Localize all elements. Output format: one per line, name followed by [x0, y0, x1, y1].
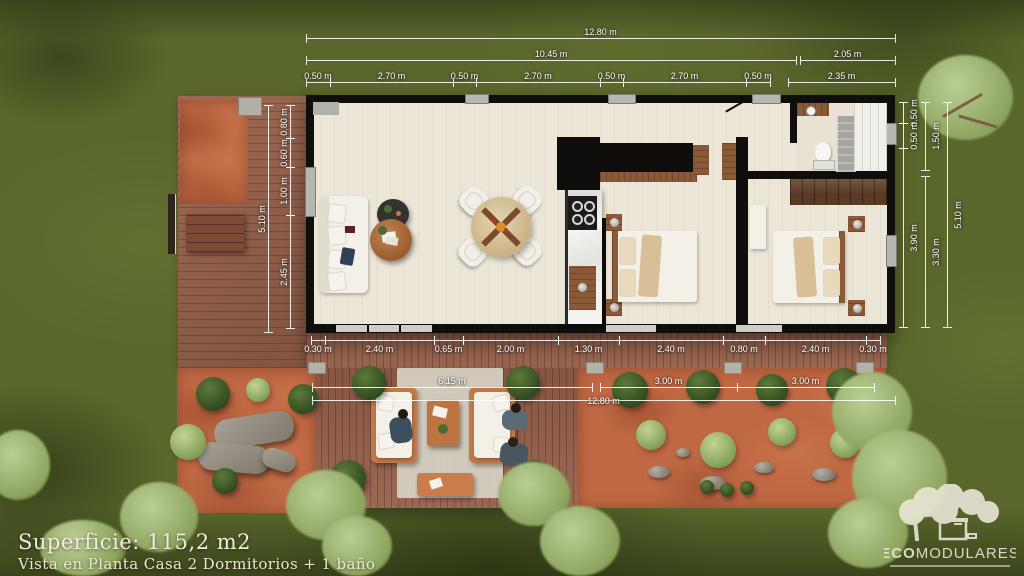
garden-shrub	[196, 377, 230, 411]
window-west	[305, 167, 316, 217]
bed-pillow	[619, 237, 636, 265]
closet-shelf	[600, 172, 697, 182]
dim-segment: 2.40 m	[765, 340, 866, 341]
sink-cabinet	[569, 266, 596, 310]
person-head	[511, 403, 521, 413]
dim-segment: 2.70 m	[476, 82, 600, 83]
dim-segment: 0.50 m	[746, 82, 770, 83]
surface-area-label: Superficie: 115,2 m2	[18, 530, 251, 554]
person	[502, 410, 528, 430]
dim-segment: 3.00 m	[600, 387, 737, 388]
person-head	[398, 409, 408, 419]
garden-tuft	[720, 483, 734, 497]
shower-tiles	[854, 103, 887, 171]
dim-segment: 0.30 m	[311, 340, 325, 341]
logo-text-eco: ECO	[884, 545, 916, 562]
floor-plan-render: 12.80 m 10.45 m 2.05 m 0.50 m 2.70 m 0.5…	[0, 0, 1024, 576]
basin	[806, 106, 816, 116]
garden-rock	[754, 462, 774, 473]
dim-segment: 0.50 m	[453, 82, 476, 83]
table-plant	[378, 226, 387, 235]
toilet-tank	[813, 160, 835, 170]
person-head	[508, 437, 518, 447]
entry-door-north	[752, 94, 781, 104]
window-east	[886, 123, 897, 145]
sink-faucet	[578, 283, 587, 292]
burner	[584, 201, 595, 212]
window-east	[886, 235, 897, 267]
garden-shrub-light	[636, 420, 666, 450]
window-south	[736, 325, 782, 332]
dim-top-10-45: 10.45 m	[306, 60, 796, 61]
ecomodulares-logo: ECOMODULARES	[884, 484, 1016, 574]
window-south	[606, 325, 656, 332]
table-plant	[384, 205, 392, 213]
console-bedroom1	[722, 143, 736, 180]
garden-shrub-light	[170, 424, 206, 460]
bed-2	[773, 231, 845, 303]
burner	[572, 201, 583, 212]
dim-segment: 3.90 m	[903, 148, 904, 327]
closet-bedroom1	[600, 143, 693, 172]
dim-right-total: 5.10 m	[947, 102, 948, 327]
garden-shrub-light	[246, 378, 270, 402]
dim-segment: 2.70 m	[330, 82, 453, 83]
bed-pillow	[823, 237, 840, 265]
nightstand	[606, 214, 622, 231]
door-mullion	[367, 325, 369, 332]
kitchen-tall-cabinet	[557, 137, 600, 190]
dim-top-total: 12.80 m	[306, 38, 895, 39]
coffee-table-wood	[370, 219, 412, 261]
person	[388, 416, 413, 445]
dim-segment: 0.80 m	[723, 340, 765, 341]
decor	[504, 228, 508, 232]
deck-steps	[186, 214, 244, 252]
toilet	[815, 142, 831, 161]
bed-pillow	[619, 269, 636, 297]
garden-tuft	[700, 480, 714, 494]
outdoor-coffee-table	[427, 400, 459, 446]
potted-plant	[506, 366, 540, 400]
window-north	[608, 94, 636, 104]
dim-segment: 1.30 m	[558, 340, 619, 341]
roof-gray-block	[238, 97, 262, 116]
book	[385, 236, 398, 246]
dim-top-2-05: 2.05 m	[800, 60, 895, 61]
garden-shrub	[756, 374, 788, 406]
dim-segment: 0.65 m	[434, 340, 463, 341]
desk-bedroom2	[750, 205, 766, 249]
garden-tuft	[740, 481, 754, 495]
dim-segment: 2.70 m	[623, 82, 746, 83]
table-plant	[438, 424, 448, 434]
pillow	[327, 271, 347, 292]
bed-pillow	[823, 269, 840, 297]
garden-shrub-light	[768, 418, 796, 446]
wardrobe-bedroom2	[790, 179, 887, 205]
dim-segment: 0.50 m	[306, 82, 330, 83]
bed-throw	[638, 234, 662, 297]
tree-foliage	[540, 506, 620, 576]
lamp	[853, 220, 862, 229]
window-north	[465, 94, 489, 104]
garden-shrub-light	[700, 432, 736, 468]
dim-segment: 0.50 m	[903, 102, 904, 123]
dim-segment: 6.15 m	[312, 387, 592, 388]
burner	[584, 214, 595, 225]
footing-pad	[724, 362, 742, 374]
deck-railing	[168, 194, 176, 254]
wall-bedroom1-bedroom2	[736, 137, 748, 324]
shower	[836, 116, 856, 172]
logo-text: ECOMODULARES	[884, 545, 1016, 562]
navy-pillow	[340, 247, 356, 266]
door-mullion	[399, 325, 401, 332]
burner	[572, 214, 583, 225]
dim-segment: 2.40 m	[325, 340, 434, 341]
dim-segment: 2.00 m	[463, 340, 558, 341]
lamp	[853, 304, 862, 313]
entry-mat	[313, 102, 339, 115]
lamp	[610, 303, 619, 312]
dim-segment: 1.00 m	[290, 167, 291, 215]
garden-rock	[812, 468, 836, 481]
pillow	[327, 203, 347, 224]
dim-segment: 0.30 m	[866, 340, 880, 341]
logo-text-modulares: MODULARES	[916, 545, 1016, 562]
dim-segment: 3.00 m	[737, 387, 874, 388]
bathroom-wall-south	[748, 171, 888, 179]
sliding-door-south	[336, 325, 432, 332]
dim-segment: 0.50 m	[903, 123, 904, 148]
dim-bottom-total: 12.80 m	[312, 400, 895, 401]
dining-table	[471, 197, 531, 257]
dim-segment: 1.50 m	[925, 102, 926, 170]
bed-throw	[793, 236, 817, 297]
garden-rock	[648, 466, 670, 478]
bath-vanity	[797, 103, 829, 116]
garden-shrub	[288, 384, 318, 414]
decor	[492, 219, 496, 223]
dim-segment: 2.35 m	[788, 82, 895, 83]
dim-segment: 0.80 m	[290, 105, 291, 138]
stove	[568, 196, 597, 230]
dim-segment: 2.45 m	[290, 215, 291, 328]
garden-shrub	[212, 468, 238, 494]
garden-rock	[676, 448, 690, 457]
nightstand	[848, 216, 865, 232]
book	[345, 226, 355, 233]
lamp	[610, 218, 619, 227]
nightstand	[848, 300, 865, 316]
outdoor-bench	[417, 473, 473, 496]
plan-subtitle: Vista en Planta Casa 2 Dormitorios + 1 b…	[18, 555, 375, 573]
bed-1	[612, 231, 697, 302]
logo-tree-icon	[899, 484, 999, 541]
bathroom-wall-west	[790, 99, 797, 143]
footing-pad	[586, 362, 604, 374]
wall-north	[306, 95, 895, 103]
paper	[432, 405, 448, 418]
dim-segment: 0.50 m	[600, 82, 623, 83]
decor	[396, 211, 401, 216]
dim-segment: 3.30 m	[925, 176, 926, 327]
paper	[429, 477, 443, 489]
sofa	[319, 196, 368, 293]
dim-left-total: 5.10 m	[268, 105, 269, 332]
footing-pad	[308, 362, 326, 374]
dim-segment: 0.60 m	[290, 138, 291, 167]
headboard	[612, 231, 618, 302]
wood-cabinet	[693, 145, 709, 175]
dim-segment: 2.40 m	[619, 340, 723, 341]
potted-plant	[352, 366, 386, 400]
